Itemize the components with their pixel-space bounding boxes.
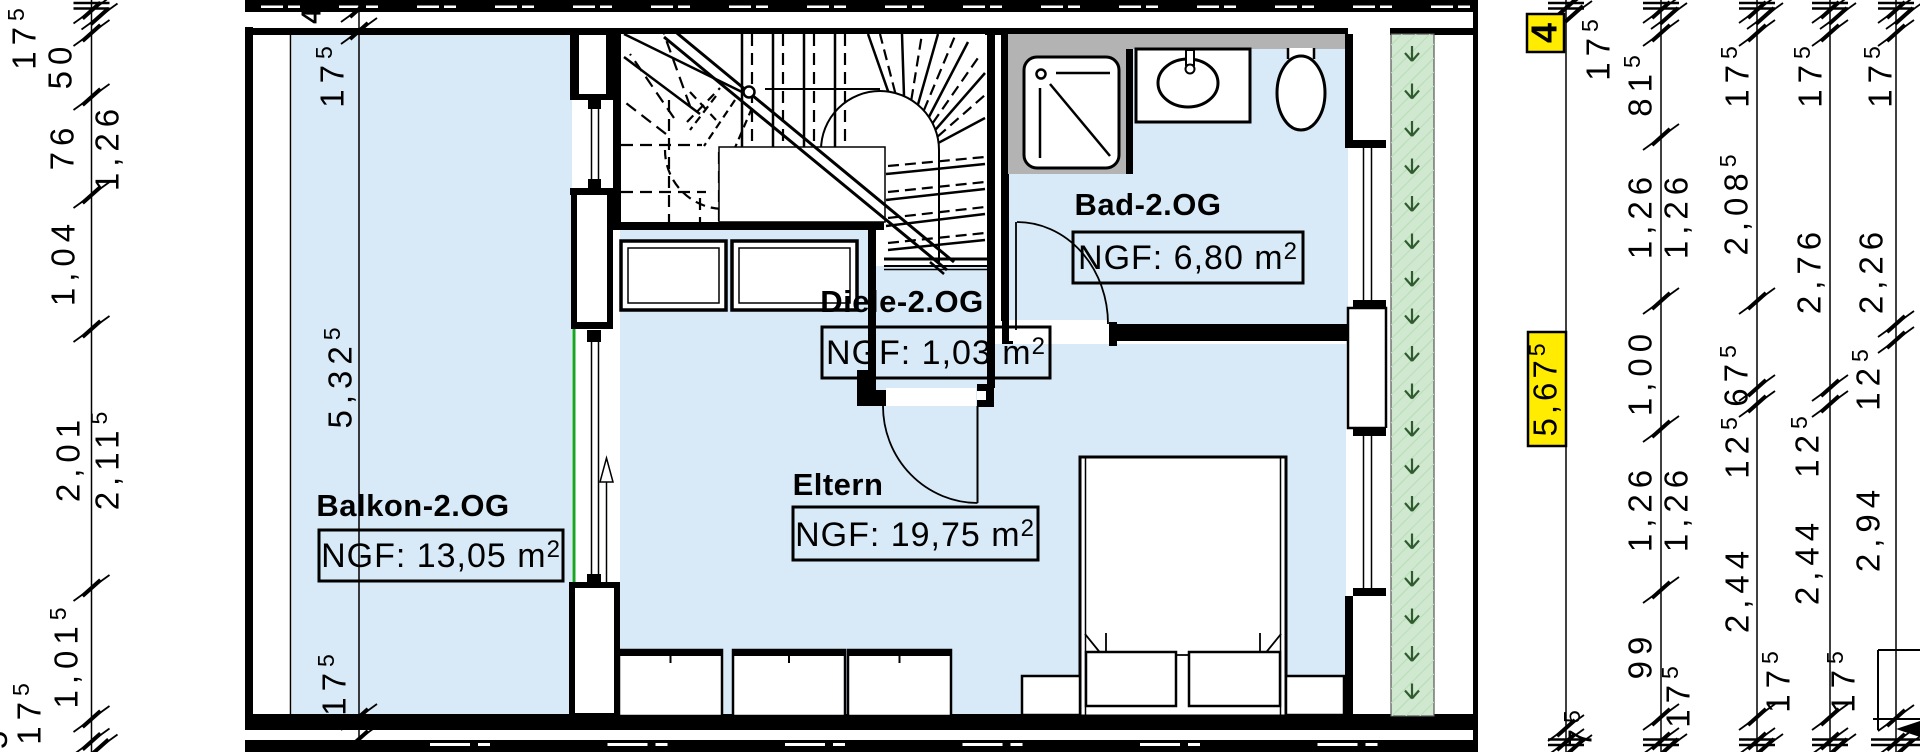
svg-text:2,44: 2,44 [1719, 545, 1756, 633]
svg-text:1,26: 1,26 [1622, 171, 1659, 259]
svg-text:1,26: 1,26 [1658, 171, 1695, 259]
svg-text:1,00: 1,00 [1622, 328, 1659, 416]
svg-text:2,44: 2,44 [1789, 517, 1826, 605]
svg-text:50: 50 [42, 41, 79, 90]
svg-text:Balkon-2.OG: Balkon-2.OG [316, 488, 509, 523]
svg-text:Diele-2.OG: Diele-2.OG [820, 284, 984, 319]
svg-text:76: 76 [44, 122, 81, 171]
svg-text:NGF: 1,03 m2: NGF: 1,03 m2 [826, 333, 1046, 372]
svg-text:Bad-2.OG: Bad-2.OG [1075, 187, 1222, 222]
svg-text:4: 4 [1524, 23, 1565, 43]
svg-text:99: 99 [1622, 631, 1659, 680]
svg-text:NGF: 6,80 m2: NGF: 6,80 m2 [1078, 238, 1298, 277]
svg-text:4: 4 [295, 8, 326, 24]
svg-text:Eltern: Eltern [793, 467, 884, 502]
svg-text:2,76: 2,76 [1791, 226, 1828, 314]
svg-text:1,26: 1,26 [89, 103, 126, 191]
svg-text:1,26: 1,26 [1622, 464, 1659, 552]
svg-text:2,94: 2,94 [1850, 484, 1887, 572]
svg-text:NGF: 13,05 m2: NGF: 13,05 m2 [321, 536, 561, 575]
svg-text:2,01: 2,01 [50, 414, 87, 502]
svg-text:1,04: 1,04 [45, 218, 82, 306]
svg-text:5: 5 [0, 731, 14, 749]
svg-text:1,26: 1,26 [1658, 464, 1695, 552]
svg-text:2,26: 2,26 [1853, 226, 1890, 314]
svg-text:NGF: 19,75 m2: NGF: 19,75 m2 [795, 515, 1035, 554]
